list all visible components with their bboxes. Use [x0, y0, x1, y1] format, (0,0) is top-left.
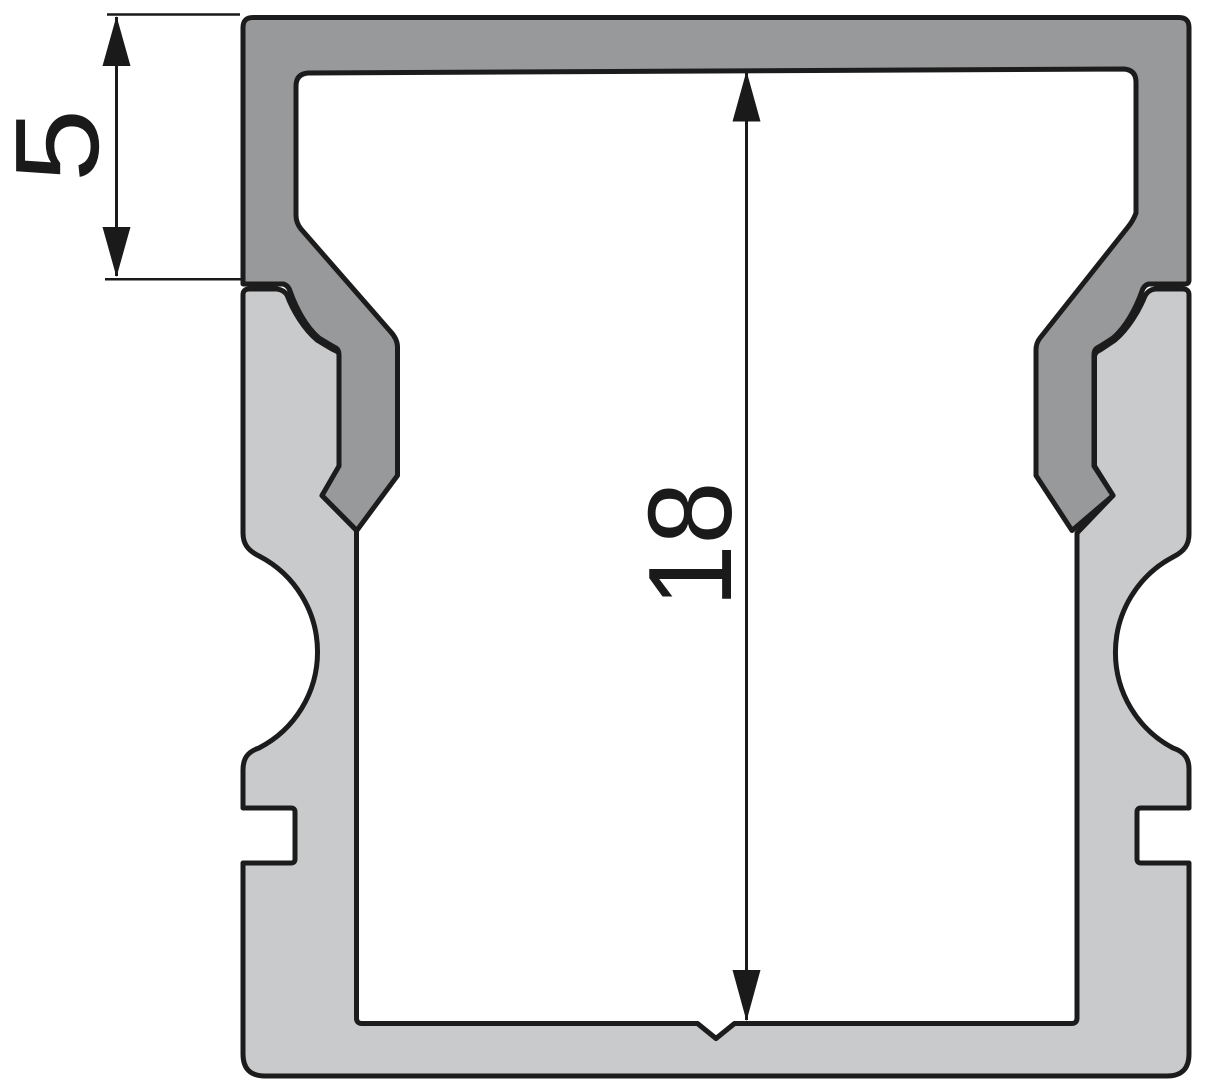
svg-text:5: 5	[0, 109, 124, 182]
svg-text:18: 18	[623, 482, 756, 608]
